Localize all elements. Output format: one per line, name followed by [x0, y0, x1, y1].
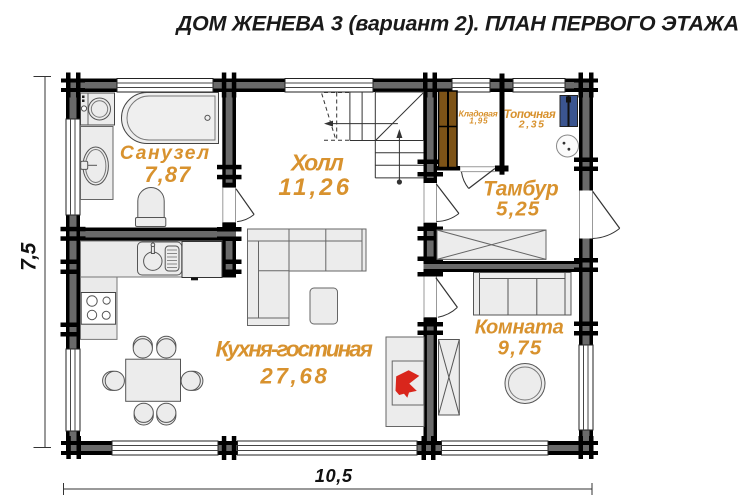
svg-text:Комната: Комната: [475, 317, 564, 339]
svg-text:5,25: 5,25: [496, 199, 540, 221]
svg-text:27,68: 27,68: [259, 363, 329, 388]
svg-text:ДОМ ЖЕНЕВА 3 (вариант 2). ПЛАН: ДОМ ЖЕНЕВА 3 (вариант 2). ПЛАН ПЕРВОГО Э…: [175, 12, 739, 36]
svg-text:1,95: 1,95: [469, 116, 488, 125]
svg-text:10,5: 10,5: [315, 465, 353, 486]
svg-text:Тамбур: Тамбур: [483, 178, 559, 201]
svg-text:Санузел: Санузел: [120, 143, 211, 164]
svg-text:7,87: 7,87: [144, 162, 192, 187]
svg-text:11,26: 11,26: [278, 174, 352, 201]
svg-text:7,5: 7,5: [18, 242, 41, 271]
svg-text:Холл: Холл: [289, 150, 343, 176]
svg-text:2,35: 2,35: [518, 119, 546, 131]
svg-text:9,75: 9,75: [498, 337, 543, 359]
svg-text:Кухня-гостиная: Кухня-гостиная: [216, 337, 373, 362]
